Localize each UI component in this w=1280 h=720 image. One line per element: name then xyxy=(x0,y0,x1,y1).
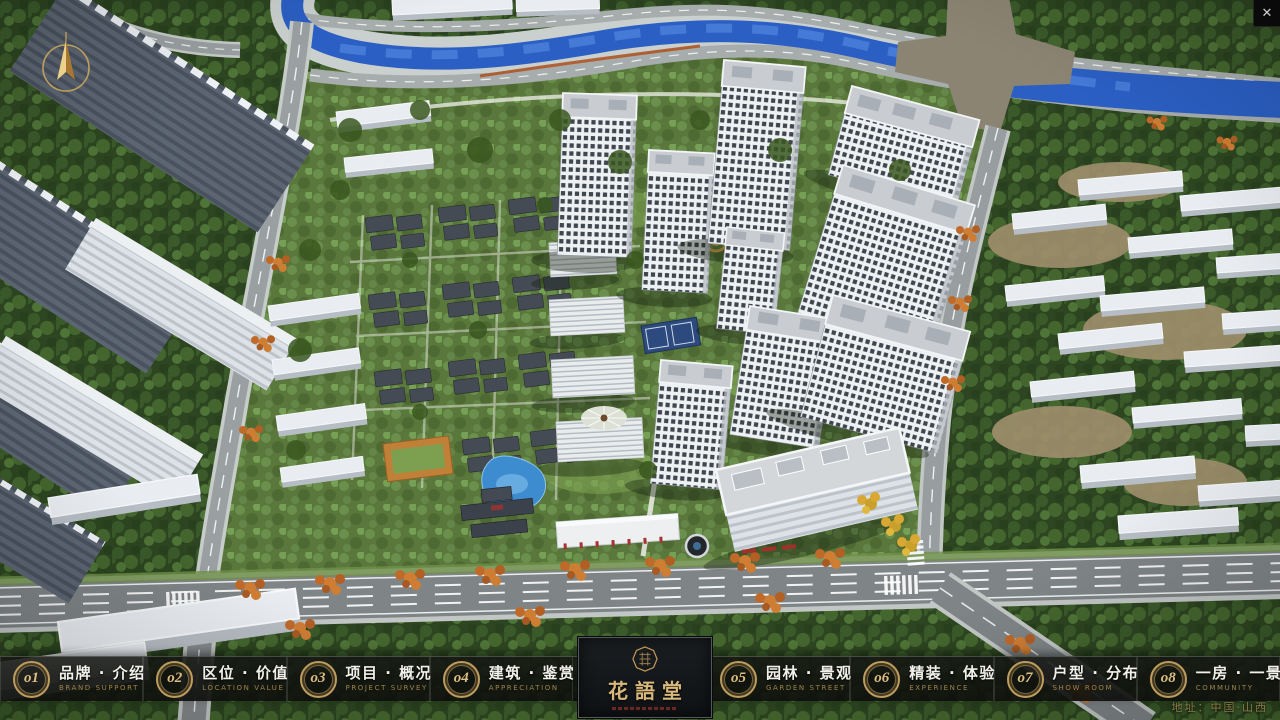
nav-label: 一房 · 一景 xyxy=(1196,666,1279,682)
masterplan-svg xyxy=(0,0,1280,720)
nav-sublabel: SHOW ROOM xyxy=(1053,685,1136,692)
nav-label: 品牌 · 介绍 xyxy=(59,666,142,682)
nav-label: 区位 · 价值 xyxy=(202,666,285,682)
brand-name: 花語堂 xyxy=(601,675,689,704)
number-badge: o6 xyxy=(863,661,900,698)
nav-item-garden[interactable]: o5 园林 · 景观 GARDEN STREET xyxy=(707,657,850,701)
nav-label: 户型 · 分布 xyxy=(1053,666,1136,682)
close-button[interactable]: ✕ xyxy=(1253,0,1280,27)
nav-item-brand[interactable]: o1 品牌 · 介绍 BRAND SUPPORT xyxy=(0,657,143,701)
brand-subtitle-mark xyxy=(612,707,678,710)
nav-label: 项目 · 概况 xyxy=(346,666,429,682)
project-address: 地址：中国·山西 xyxy=(1172,699,1269,715)
nav-item-project[interactable]: o3 项目 · 概况 PROJECT SURVEY xyxy=(287,657,430,701)
vignette xyxy=(0,0,1280,720)
nav-item-floorplan[interactable]: o7 户型 · 分布 SHOW ROOM xyxy=(994,657,1137,701)
number-badge: o8 xyxy=(1150,661,1187,698)
nav-sublabel: LOCATION VALUE xyxy=(202,685,285,692)
sales-presentation-app: ✕ o1 品牌 · 介绍 BRAND SUPPORT o2 区位 · 价值 LO… xyxy=(0,0,1280,720)
nav-sublabel: BRAND SUPPORT xyxy=(59,685,142,692)
aerial-masterplan-render xyxy=(0,0,1280,720)
nav-sublabel: COMMUNITY xyxy=(1196,685,1279,692)
number-badge: o4 xyxy=(443,661,480,698)
nav-item-views[interactable]: o8 一房 · 一景 COMMUNITY xyxy=(1137,657,1280,701)
brand-logo-panel: 花語堂 xyxy=(578,637,712,718)
nav-label: 精装 · 体验 xyxy=(909,666,992,682)
nav-label: 园林 · 景观 xyxy=(766,666,849,682)
seal-emblem-icon xyxy=(632,646,658,672)
number-badge: o2 xyxy=(156,661,193,698)
nav-sublabel: GARDEN STREET xyxy=(766,685,849,692)
nav-sublabel: APPRECIATION xyxy=(489,685,572,692)
nav-sublabel: EXPERIENCE xyxy=(909,685,992,692)
nav-sublabel: PROJECT SURVEY xyxy=(346,685,429,692)
number-badge: o7 xyxy=(1007,661,1044,698)
number-badge: o5 xyxy=(720,661,757,698)
number-badge: o1 xyxy=(13,661,50,698)
nav-item-architecture[interactable]: o4 建筑 · 鉴赏 APPRECIATION xyxy=(430,657,573,701)
nav-label: 建筑 · 鉴赏 xyxy=(489,666,572,682)
nav-item-interior[interactable]: o6 精装 · 体验 EXPERIENCE xyxy=(850,657,993,701)
nav-item-location[interactable]: o2 区位 · 价值 LOCATION VALUE xyxy=(143,657,286,701)
number-badge: o3 xyxy=(300,661,337,698)
north-compass-icon xyxy=(38,30,94,98)
